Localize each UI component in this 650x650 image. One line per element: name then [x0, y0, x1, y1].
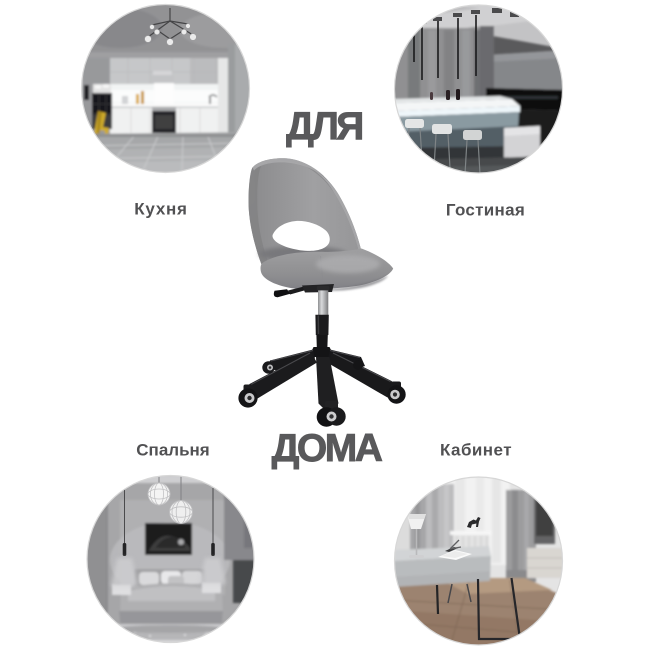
svg-text:Спальня: Спальня [136, 441, 209, 460]
svg-text:Кабинет: Кабинет [440, 441, 512, 460]
svg-text:ДЛЯ: ДЛЯ [286, 105, 362, 148]
svg-text:Гостиная: Гостиная [446, 200, 525, 219]
svg-text:ДОМА: ДОМА [272, 427, 383, 470]
svg-text:Кухня: Кухня [134, 200, 187, 219]
